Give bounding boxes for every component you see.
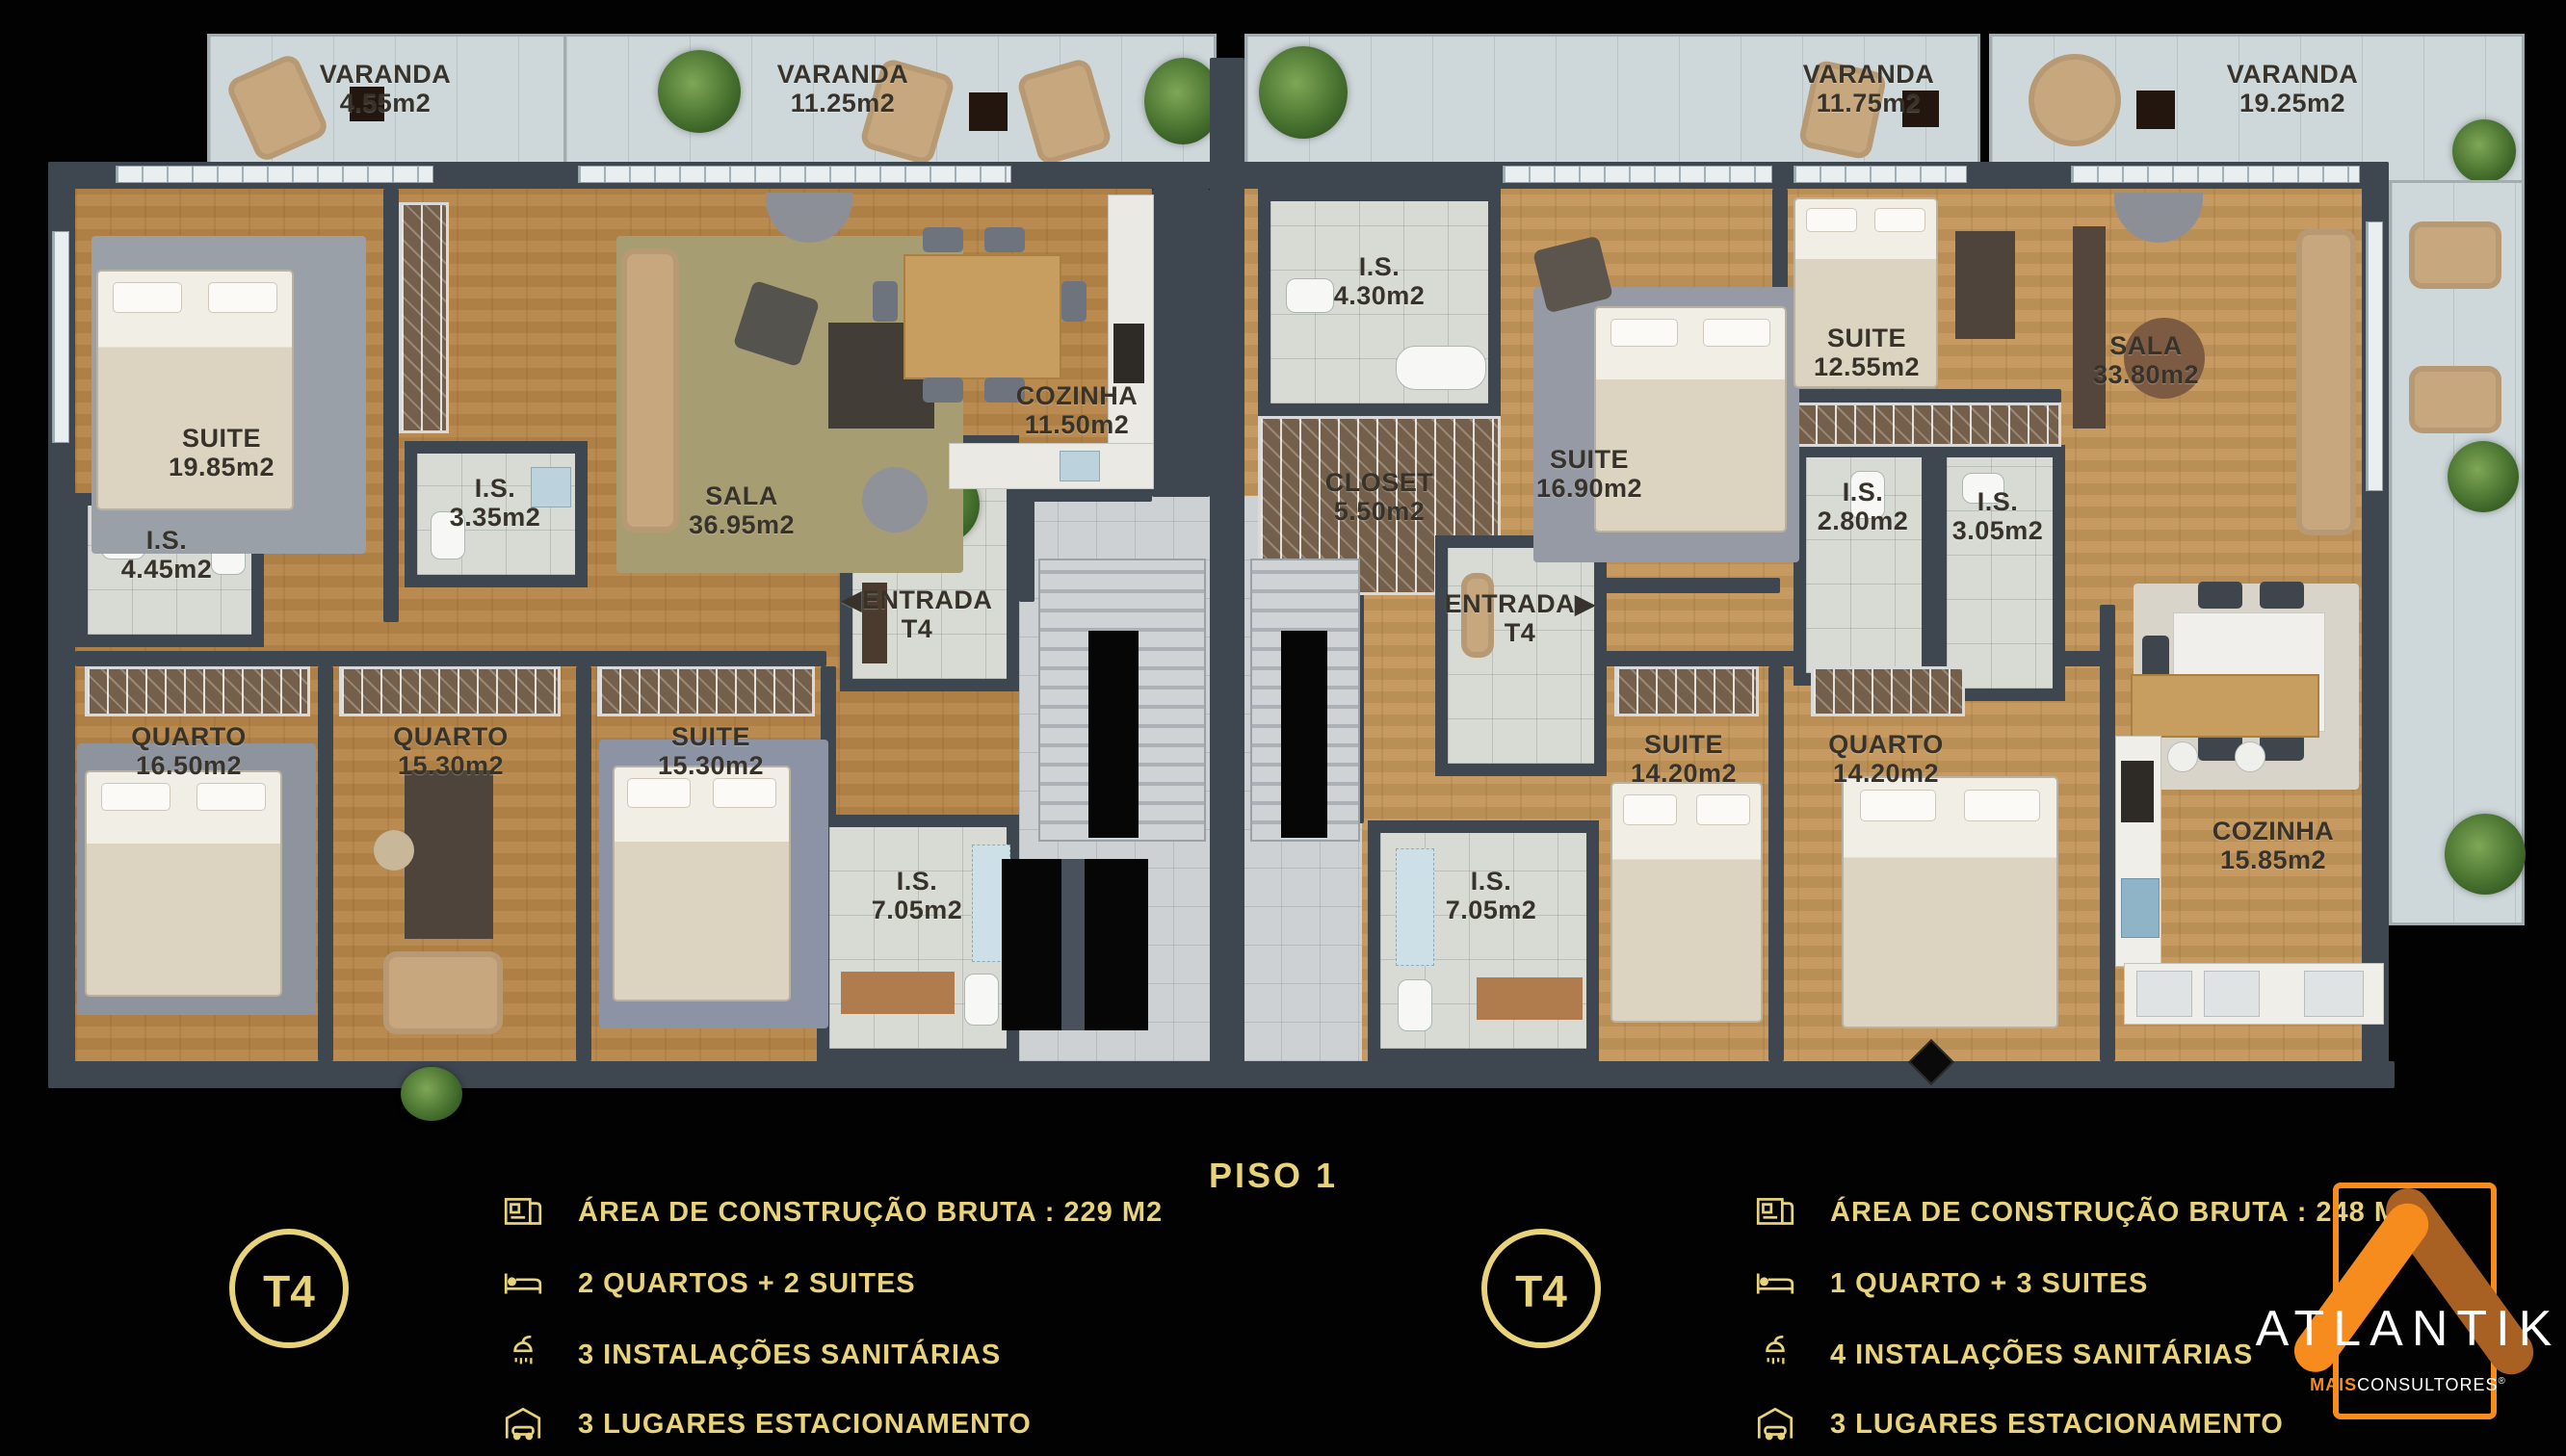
- plant: [2452, 119, 2516, 183]
- room-label-entrada-b: ENTRADA▶T4: [1445, 589, 1596, 647]
- shower-icon: [501, 1333, 545, 1377]
- wall: [1794, 389, 2061, 403]
- window: [1794, 166, 1967, 183]
- cooktop: [2121, 761, 2154, 822]
- room-label-sala-b: SALA33.80m2: [2093, 331, 2199, 389]
- lounge-chair: [2409, 221, 2501, 289]
- media-console: [2073, 226, 2106, 429]
- room-label-is-7-05-b: I.S.7.05m2: [1446, 867, 1537, 924]
- window: [2366, 221, 2383, 491]
- bed-icon: [501, 1261, 545, 1306]
- page-title: PISO 1: [1209, 1156, 1338, 1196]
- window: [1503, 166, 1772, 183]
- wall: [2100, 605, 2115, 1061]
- closet-strip: [339, 666, 561, 716]
- dining-chair: [873, 281, 898, 322]
- dining-table: [903, 254, 1061, 379]
- room-label-suite-16-90: SUITE16.90m2: [1536, 445, 1642, 503]
- dining-chair: [1061, 281, 1087, 322]
- pouf: [862, 467, 928, 533]
- room-label-closet-5-50: CLOSET5.50m2: [1325, 468, 1434, 526]
- toilet: [964, 974, 999, 1026]
- room-is-7-05-right: [1368, 820, 1599, 1061]
- closet-strip: [399, 202, 449, 433]
- plant: [1259, 46, 1348, 139]
- appliance: [2304, 971, 2364, 1017]
- shower-icon: [1753, 1333, 1797, 1377]
- daybed: [383, 951, 503, 1034]
- spec-area-left: ÁREA DE CONSTRUÇÃO BRUTA : 229 M2: [501, 1190, 1163, 1235]
- plant: [2448, 441, 2519, 512]
- spec-rooms-right: 1 QUARTO + 3 SUITES: [1753, 1261, 2148, 1306]
- window: [578, 166, 1011, 183]
- lounge-chair: [224, 52, 331, 165]
- wall-central-divider: [1210, 58, 1244, 1088]
- balcony-b2-side: [2389, 180, 2525, 925]
- dining-chair: [984, 227, 1025, 252]
- bathtub: [1396, 346, 1486, 390]
- closet-strip: [597, 666, 815, 716]
- dining-chair: [923, 227, 963, 252]
- logo-brand-text: ATLANTIK: [2254, 1300, 2562, 1358]
- wall: [318, 666, 333, 1061]
- room-entrada-right: [1435, 535, 1607, 776]
- room-label-varanda-a2: VARANDA11.25m2: [777, 60, 909, 117]
- entry-door-void: [1085, 859, 1148, 1030]
- room-label-cozinha-a: COZINHA11.50m2: [1016, 381, 1139, 439]
- spec-parking-right: 3 LUGARES ESTACIONAMENTO: [1753, 1402, 2284, 1446]
- bed-suite-14-20: [1610, 782, 1763, 1023]
- garage-icon: [501, 1402, 545, 1446]
- cooktop: [1113, 324, 1144, 383]
- room-label-is-7-05-a: I.S.7.05m2: [872, 867, 963, 924]
- wall: [75, 651, 826, 666]
- plant: [401, 1067, 462, 1121]
- plant: [658, 50, 741, 133]
- spec-parking-left: 3 LUGARES ESTACIONAMENTO: [501, 1402, 1032, 1446]
- side-table: [969, 92, 1008, 131]
- chair: [374, 830, 414, 871]
- window: [116, 166, 433, 183]
- spec-rooms-left: 2 QUARTOS + 2 SUITES: [501, 1261, 916, 1306]
- room-label-is-4-45: I.S.4.45m2: [121, 526, 213, 584]
- dining-chair: [2198, 582, 2242, 609]
- spec-baths-left: 3 INSTALAÇÕES SANITÁRIAS: [501, 1333, 1001, 1377]
- bed-quarto-16-50: [85, 770, 282, 997]
- room-label-quarto-16-50: QUARTO16.50m2: [131, 722, 247, 780]
- closet-strip: [1614, 666, 1759, 716]
- spec-baths-right: 4 INSTALAÇÕES SANITÁRIAS: [1753, 1333, 2253, 1377]
- wall: [1061, 859, 1085, 1030]
- floorplan-page: VARANDA4.55m2 VARANDA11.25m2 SUITE19.85m…: [0, 0, 2566, 1456]
- window: [2071, 166, 2360, 183]
- stool: [2235, 741, 2265, 772]
- bed-quarto-14-20: [1842, 776, 2058, 1028]
- sofa: [2296, 229, 2356, 535]
- wall: [48, 1061, 1216, 1088]
- blueprint-icon: [501, 1190, 545, 1235]
- room-label-varanda-b2: VARANDA19.25m2: [2227, 60, 2359, 117]
- entrance-arrow-icon: ▶: [1575, 589, 1595, 618]
- closet-strip: [1794, 403, 2061, 447]
- room-label-is-4-30: I.S.4.30m2: [1334, 252, 1426, 310]
- elevator-shaft: [1088, 631, 1139, 838]
- room-label-suite-12-55: SUITE12.55m2: [1814, 324, 1920, 381]
- shower: [1396, 848, 1434, 966]
- wall: [576, 666, 591, 1061]
- room-label-suite-15-30: SUITE15.30m2: [658, 722, 764, 780]
- room-label-entrada-a: ◀ENTRADAT4: [842, 585, 993, 643]
- elevator-shaft: [1281, 631, 1327, 838]
- dining-chair: [2260, 734, 2304, 761]
- room-label-is-3-05: I.S.3.05m2: [1952, 487, 2044, 545]
- desk: [1955, 231, 2015, 339]
- closet-strip: [1811, 666, 1965, 716]
- plant: [2445, 814, 2526, 895]
- wall: [1152, 189, 1210, 497]
- room-label-quarto-15-30: QUARTO15.30m2: [393, 722, 509, 780]
- room-label-varanda-b1: VARANDA11.75m2: [1803, 60, 1935, 117]
- blueprint-icon: [1753, 1190, 1797, 1235]
- wall: [1768, 666, 1784, 1061]
- kitchen-counter: [949, 443, 1154, 489]
- room-is-3-05: [1934, 445, 2065, 701]
- bed-icon: [1753, 1261, 1797, 1306]
- unit-badge-t4-right: T4: [1481, 1229, 1601, 1348]
- dining-chair: [2260, 582, 2304, 609]
- appliance: [2204, 971, 2260, 1017]
- atlantik-logo: ATLANTIK MAISCONSULTORES®: [2254, 1148, 2562, 1456]
- sink: [2121, 878, 2160, 938]
- toilet: [1398, 979, 1432, 1031]
- room-is-7-05-left: [817, 815, 1019, 1061]
- vanity: [1477, 977, 1583, 1020]
- wall: [1019, 486, 1034, 602]
- room-label-is-2-80: I.S.2.80m2: [1818, 478, 1909, 535]
- room-label-suite-14-20: SUITE14.20m2: [1631, 730, 1737, 788]
- room-label-cozinha-b: COZINHA15.85m2: [2213, 817, 2335, 874]
- lounge-chair: [2409, 366, 2501, 433]
- room-label-is-3-35: I.S.3.35m2: [450, 474, 541, 532]
- stool: [2167, 741, 2198, 772]
- room-label-quarto-14-20: QUARTO14.20m2: [1828, 730, 1944, 788]
- hanging-chair: [2029, 54, 2121, 146]
- window: [52, 231, 69, 443]
- closet-strip: [85, 666, 310, 716]
- sofa: [621, 248, 679, 533]
- desk: [405, 770, 493, 939]
- dining-chair: [923, 377, 963, 403]
- entry-door-void: [1002, 859, 1061, 1030]
- bed-suite-15-30: [613, 766, 791, 1001]
- logo-subtitle: MAISCONSULTORES®: [2254, 1375, 2562, 1395]
- kitchen-island: [2131, 674, 2319, 738]
- unit-badge-t4-left: T4: [229, 1229, 349, 1348]
- wall: [1243, 1061, 2395, 1088]
- room-label-sala-a: SALA36.95m2: [689, 481, 795, 539]
- vanity: [841, 972, 955, 1014]
- entrance-arrow-icon: ◀: [842, 585, 862, 614]
- wall: [383, 189, 399, 622]
- room-label-varanda-a1: VARANDA4.55m2: [320, 60, 452, 117]
- planter-box: [2136, 91, 2175, 129]
- sink: [1286, 278, 1334, 313]
- sink: [1060, 451, 1100, 481]
- appliance: [2136, 971, 2192, 1017]
- garage-icon: [1753, 1402, 1797, 1446]
- room-label-suite-19-85: SUITE19.85m2: [169, 424, 275, 481]
- lounge-chair: [1015, 57, 1113, 167]
